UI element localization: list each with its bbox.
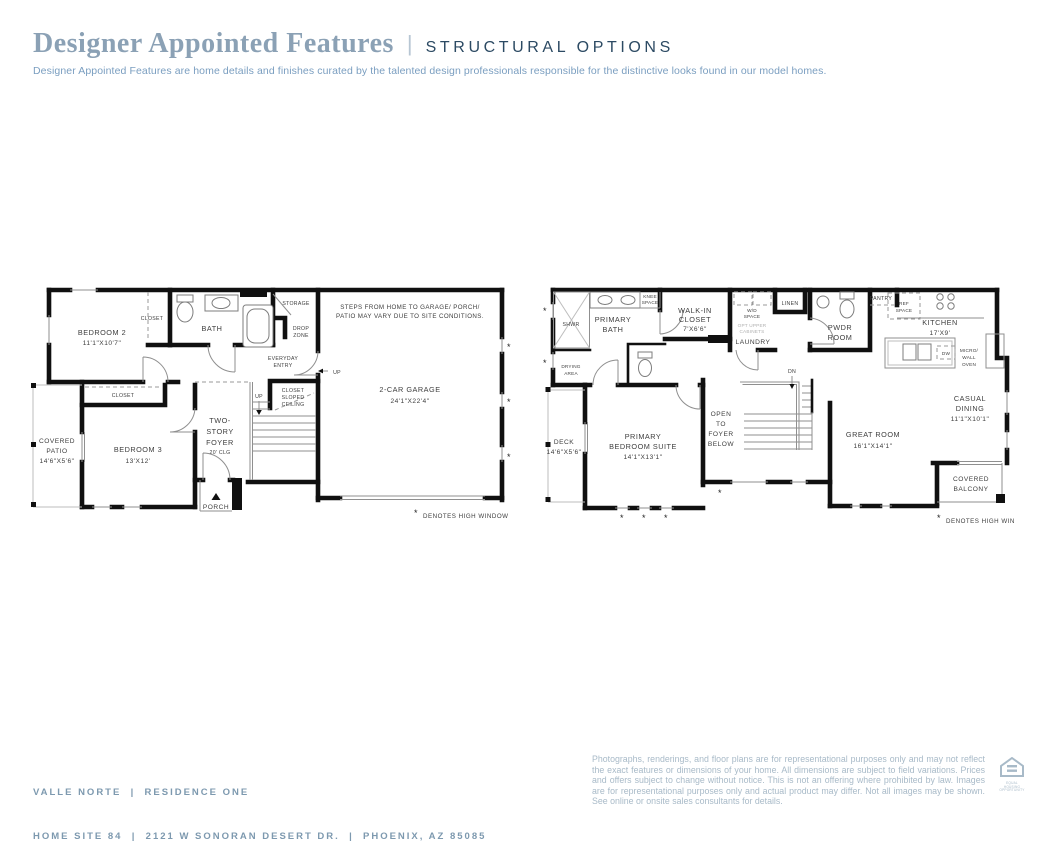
- micro-wall-oven-label: MICRO/: [960, 348, 979, 353]
- drying-area-label: DRYING: [561, 364, 580, 369]
- svg-text:16'1"X14'1": 16'1"X14'1": [853, 443, 892, 450]
- powder-toilet-icon: [840, 292, 854, 299]
- high-window-asterisk: *: [642, 513, 646, 523]
- svg-text:FOYER: FOYER: [708, 431, 733, 438]
- high-window-asterisk: *: [543, 306, 547, 316]
- high-window-legend: DENOTES HIGH WINDOW: [423, 513, 508, 520]
- svg-text:WALL: WALL: [962, 355, 976, 360]
- svg-text:20' CLG: 20' CLG: [210, 450, 231, 456]
- foyer-label: TWO-: [209, 416, 231, 425]
- legend-asterisk: *: [414, 508, 418, 518]
- dw-label: DW: [942, 351, 951, 356]
- svg-text:AREA: AREA: [564, 371, 578, 376]
- storage-label: STORAGE: [282, 301, 310, 307]
- svg-text:11'1"X10'1": 11'1"X10'1": [951, 416, 990, 423]
- equal-housing-caption: EQUAL HOUSING OPPORTUNITY: [999, 782, 1025, 793]
- great-room-label: GREAT ROOM: [846, 430, 900, 439]
- svg-text:CEILING: CEILING: [282, 402, 305, 408]
- stairs-dn-label: DN: [788, 369, 796, 375]
- kitchen-label: KITCHEN: [922, 318, 958, 327]
- svg-text:24'1"X22'4": 24'1"X22'4": [390, 398, 429, 405]
- svg-text:CABINETS: CABINETS: [739, 329, 764, 334]
- wd-space-label: W/D: [747, 308, 757, 313]
- ref-space-label: REF: [899, 301, 909, 306]
- porch-arrow-icon: [212, 493, 221, 500]
- floor2-labels: SHWR DRYING AREA PRIMARY BATH KNEE SPACE…: [543, 294, 1015, 525]
- closet-top-label: CLOSET: [141, 316, 164, 322]
- primary-bath-label: PRIMARY: [595, 315, 632, 324]
- svg-text:TO: TO: [716, 421, 726, 428]
- deck-label: DECK: [554, 439, 574, 446]
- refrigerator-space-icon: [888, 293, 920, 319]
- floor-plan-first-floor: BEDROOM 2 11'1"X10'7" CLOSET BATH STORAG…: [30, 282, 520, 530]
- covered-patio-label: COVERED: [39, 438, 75, 445]
- garage-up-label: UP: [333, 370, 341, 376]
- cooktop-icon: [937, 294, 943, 300]
- open-to-foyer-label: OPEN: [711, 411, 732, 418]
- community-residence-line: VALLE NORTE | RESIDENCE ONE: [33, 786, 486, 801]
- powder-sink-icon: [817, 296, 829, 308]
- high-window-asterisk: *: [620, 513, 624, 523]
- equal-housing-logo: EQUAL HOUSING OPPORTUNITY: [999, 757, 1025, 793]
- high-window-asterisk: *: [507, 397, 511, 407]
- svg-text:BATH: BATH: [603, 325, 624, 334]
- washer-icon: [734, 292, 752, 305]
- porch-label: PORCH: [203, 504, 229, 511]
- svg-text:CLOSET: CLOSET: [679, 315, 711, 324]
- footer-project-info: VALLE NORTE | RESIDENCE ONE HOME SITE 84…: [33, 757, 486, 859]
- title-separator: |: [407, 31, 413, 57]
- svg-text:BELOW: BELOW: [708, 441, 735, 448]
- closet-sloped-label: CLOSET: [282, 388, 305, 394]
- svg-text:SPACE: SPACE: [896, 308, 913, 313]
- svg-text:BEDROOM SUITE: BEDROOM SUITE: [609, 442, 677, 451]
- title-row: Designer Appointed Features | STRUCTURAL…: [33, 28, 826, 60]
- opt-upper-cabinets-label: OPT UPPER: [738, 323, 767, 328]
- homesite-address-line: HOME SITE 84 | 2121 W SONORAN DESERT DR.…: [33, 830, 486, 845]
- high-window-asterisk: *: [507, 452, 511, 462]
- garage-note: STEPS FROM HOME TO GARAGE/ PORCH/: [340, 304, 480, 311]
- dryer-icon: [753, 292, 771, 305]
- high-window-asterisk: *: [543, 358, 547, 368]
- svg-text:7'X6'6": 7'X6'6": [683, 326, 707, 333]
- closet-mid-label: CLOSET: [112, 393, 135, 399]
- high-window-asterisk: *: [664, 513, 668, 523]
- toilet-icon: [638, 352, 652, 358]
- toilet-icon: [177, 295, 193, 302]
- primary-suite-label: PRIMARY: [625, 432, 662, 441]
- drop-zone-label: DROP: [293, 326, 309, 332]
- svg-text:SPACE: SPACE: [642, 300, 659, 305]
- shower-label: SHWR: [562, 322, 579, 328]
- svg-text:PATIO MAY VARY DUE TO SITE CON: PATIO MAY VARY DUE TO SITE CONDITIONS.: [336, 313, 484, 320]
- floor1-bath-fixtures: [177, 295, 273, 347]
- svg-text:ENTRY: ENTRY: [274, 363, 293, 369]
- floor1-walls: [49, 288, 502, 510]
- svg-text:OVEN: OVEN: [962, 362, 976, 367]
- bedroom3-label: BEDROOM 3: [114, 445, 162, 454]
- svg-text:PATIO: PATIO: [46, 448, 67, 455]
- equal-housing-logo-icon: [1000, 757, 1024, 777]
- island-sink-icon: [903, 344, 916, 360]
- everyday-entry-label: EVERYDAY: [268, 356, 298, 362]
- legend-asterisk: *: [937, 513, 941, 523]
- high-window-legend: DENOTES HIGH WINDOW: [946, 518, 1015, 525]
- svg-text:SPACE: SPACE: [744, 314, 761, 319]
- page-header: Designer Appointed Features | STRUCTURAL…: [33, 28, 826, 77]
- walk-in-closet-label: WALK-IN: [678, 306, 712, 315]
- page-title: Designer Appointed Features: [33, 28, 394, 60]
- covered-balcony-label: COVERED: [953, 476, 989, 483]
- casual-dining-label: CASUAL: [954, 394, 986, 403]
- linen-label: LINEN: [782, 301, 799, 307]
- pantry-label: PANTRY: [870, 296, 893, 302]
- powder-room-label: PWDR: [828, 323, 852, 332]
- knee-space-label: KNEE: [643, 294, 657, 299]
- svg-text:14'6"X5'6": 14'6"X5'6": [547, 449, 582, 456]
- svg-text:14'1"X13'1": 14'1"X13'1": [623, 454, 662, 461]
- floor1-doors: [143, 345, 328, 480]
- svg-text:SLOPED: SLOPED: [282, 395, 305, 401]
- svg-text:DINING: DINING: [956, 404, 985, 413]
- svg-text:ROOM: ROOM: [828, 333, 853, 342]
- svg-text:17'X9': 17'X9': [930, 330, 951, 337]
- bedroom2-dims: 11'1"X10'7": [83, 340, 122, 347]
- svg-text:ZONE: ZONE: [293, 333, 309, 339]
- garage-label: 2-CAR GARAGE: [379, 385, 440, 394]
- legal-disclaimer: Photographs, renderings, and floor plans…: [592, 754, 985, 807]
- high-window-asterisk: *: [507, 342, 511, 352]
- svg-text:13'X12': 13'X12': [125, 458, 150, 465]
- bedroom2-label: BEDROOM 2: [78, 328, 126, 337]
- page-description: Designer Appointed Features are home det…: [33, 65, 826, 77]
- svg-text:FOYER: FOYER: [206, 438, 234, 447]
- svg-text:14'6"X5'6": 14'6"X5'6": [40, 458, 75, 465]
- floor-plan-second-floor: SHWR DRYING AREA PRIMARY BATH KNEE SPACE…: [540, 282, 1015, 532]
- bath-label: BATH: [202, 324, 223, 333]
- floor2-stairs: [740, 376, 812, 450]
- stairs-up-label: UP: [255, 394, 263, 400]
- svg-text:STORY: STORY: [206, 427, 233, 436]
- laundry-label: LAUNDRY: [736, 339, 771, 346]
- page-subtitle: STRUCTURAL OPTIONS: [426, 39, 674, 57]
- svg-text:BALCONY: BALCONY: [953, 486, 988, 493]
- high-window-asterisk: *: [718, 488, 722, 498]
